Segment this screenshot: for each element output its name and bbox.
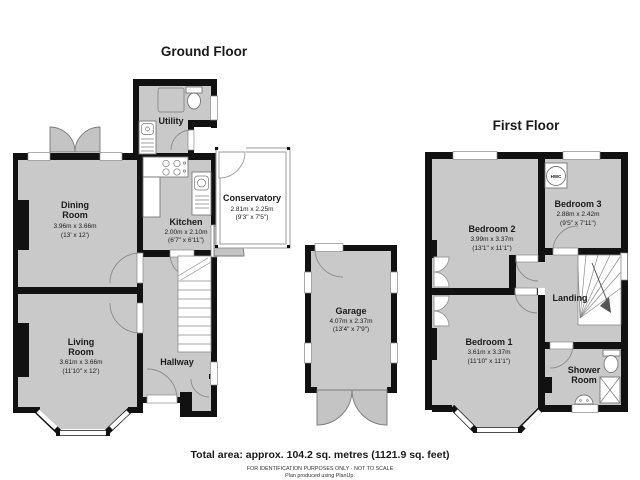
living-door [137, 303, 143, 333]
bedroom3-label: Bedroom 3 [554, 199, 601, 209]
shower-room-label: Shower [568, 365, 601, 375]
garage-window [391, 272, 398, 293]
utility-sink-icon [139, 121, 156, 154]
bedroom1-dims: 3.61m x 3.37m [468, 349, 511, 356]
svg-text:Room: Room [62, 210, 88, 220]
living-room-dims: 3.61m x 3.66m [60, 359, 103, 366]
utility-label: Utility [158, 116, 183, 126]
first-floor-plan: HWC First Floor Bedroom 2 3.99m x 3.37m [425, 118, 628, 430]
svg-text:(13' x 12'): (13' x 12') [61, 232, 89, 239]
garage-side-door [315, 244, 343, 252]
toilet-icon [186, 87, 202, 93]
ground-floor-stairs [178, 256, 211, 352]
svg-text:(6'7" x 6'11"): (6'7" x 6'11") [168, 237, 204, 244]
garage-door-left [317, 390, 352, 425]
svg-text:(9'5" x 7'11"): (9'5" x 7'11") [560, 220, 596, 227]
dining-window-left [28, 153, 50, 161]
living-room-label: Living [68, 337, 95, 347]
disclaimer-text: FOR IDENTIFICATION PURPOSES ONLY - NOT T… [247, 466, 394, 472]
hallway-label: Hallway [160, 357, 194, 367]
dining-room-label: Dining [61, 200, 89, 210]
floorplan-canvas: Ground Floor Dining Room 3.96m x 3.66m (… [0, 0, 640, 480]
bedroom2-dims: 3.99m x 3.37m [471, 236, 514, 243]
total-area-text: Total area: approx. 104.2 sq. metres (11… [191, 449, 450, 461]
landing-label: Landing [553, 293, 588, 303]
ground-floor-plan: Ground Floor Dining Room 3.96m x 3.66m (… [13, 44, 290, 433]
first-floor-title: First Floor [493, 118, 560, 133]
dining-room-dims: 3.96m x 3.66m [54, 223, 97, 230]
svg-text:Room: Room [571, 375, 597, 385]
bedroom2-door [516, 255, 538, 262]
garage-dims: 4.07m x 2.37m [330, 318, 373, 325]
hallway-window [211, 362, 218, 385]
utility-window [211, 96, 218, 120]
shower-icon [600, 377, 620, 403]
conservatory-dims: 2.81m x 2.25m [231, 206, 274, 213]
kitchen-dims: 2.00m x 2.10m [165, 229, 208, 236]
floorplan-page: Ground Floor Dining Room 3.96m x 3.66m (… [0, 0, 640, 480]
first-floor-stairs [578, 255, 621, 325]
svg-text:HWC: HWC [551, 174, 562, 179]
credit-text: Plan produced using PlanUp. [285, 473, 355, 479]
bedroom2-window [453, 152, 497, 160]
conservatory-label: Conservatory [223, 193, 281, 203]
svg-text:(11'10" x 12'): (11'10" x 12') [62, 368, 99, 375]
bedroom3-door [553, 248, 578, 255]
bedroom2-label: Bedroom 2 [468, 224, 515, 234]
garage-window [305, 343, 312, 363]
garage-door-right [352, 390, 387, 425]
bedroom3-window [563, 152, 600, 160]
dining-window-right [100, 153, 122, 161]
footer: Total area: approx. 104.2 sq. metres (11… [191, 449, 450, 479]
svg-text:(9'3" x 7'5"): (9'3" x 7'5") [236, 214, 269, 221]
front-door [147, 395, 177, 403]
french-door-right [75, 127, 100, 152]
garage-label: Garage [335, 306, 366, 316]
garage-window [391, 343, 398, 363]
hot-water-cylinder: HWC [545, 163, 567, 188]
ground-floor-title: Ground Floor [161, 44, 248, 59]
utility-back-door [188, 130, 194, 150]
svg-text:Room: Room [68, 347, 94, 357]
shower-room-door [550, 342, 573, 349]
bedroom1-door [515, 288, 537, 295]
garage-window [305, 272, 312, 293]
svg-text:(11'10" x 11'1"): (11'10" x 11'1") [468, 358, 511, 365]
bedroom3-dims: 2.88m x 2.42m [557, 211, 600, 218]
bedroom1-label: Bedroom 1 [465, 337, 512, 347]
dining-door [137, 253, 143, 283]
french-door-left [50, 127, 75, 152]
svg-text:(13'1" x 11'1"): (13'1" x 11'1") [472, 245, 512, 252]
svg-text:(13'4" x 7'9"): (13'4" x 7'9") [333, 326, 369, 333]
kitchen-label: Kitchen [169, 217, 202, 227]
landing-window [621, 253, 628, 280]
shower-room-window [572, 405, 598, 413]
garage-plan: Garage 4.07m x 2.37m (13'4" x 7'9") [305, 244, 398, 426]
